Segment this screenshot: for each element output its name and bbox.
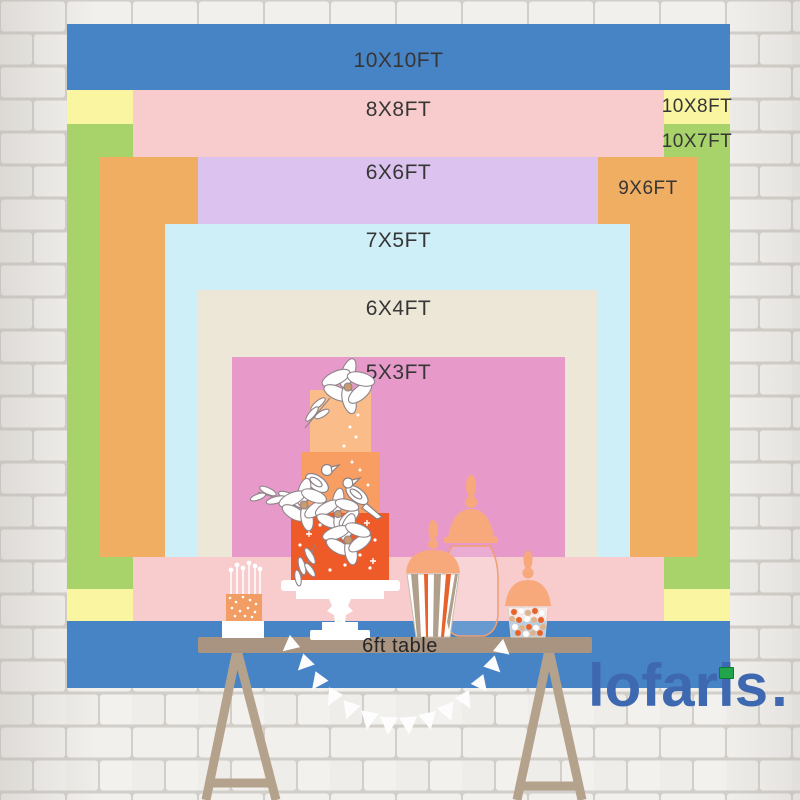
backdrop-product-scene: 10X10FT 8X8FT 6X6FT 7X5FT 6X4FT 5X3FT 10… (0, 0, 800, 800)
lofaris-logo: lofaris. (588, 656, 788, 736)
logo-green-accent (719, 667, 734, 679)
size-label-10x8ft: 10X8FT (662, 96, 733, 118)
size-label-9x6ft: 9X6FT (618, 178, 678, 200)
size-label-10x10ft: 10X10FT (67, 50, 730, 72)
logo-period: . (771, 652, 788, 719)
size-label-10x7ft: 10X7FT (662, 131, 733, 153)
size-label-6x4ft: 6X4FT (67, 298, 730, 320)
backdrop-size-chart: 10X10FT 8X8FT 6X6FT 7X5FT 6X4FT 5X3FT 10… (67, 24, 730, 688)
lofaris-logo-text: lofaris (588, 652, 768, 719)
backdrop-layer-5x3ft (232, 357, 565, 557)
size-label-8x8ft: 8X8FT (67, 99, 730, 121)
size-label-5x3ft: 5X3FT (67, 362, 730, 384)
size-label-7x5ft: 7X5FT (67, 230, 730, 252)
table-size-label: 6ft table (300, 635, 500, 658)
